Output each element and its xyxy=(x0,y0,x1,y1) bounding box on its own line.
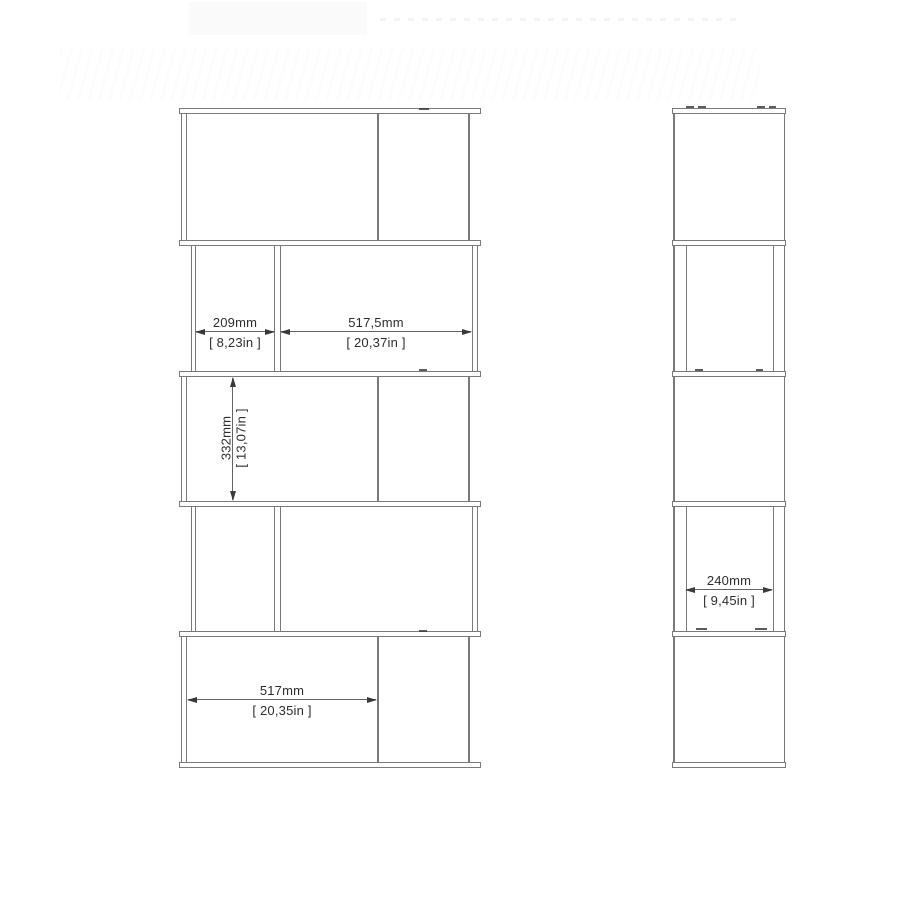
side-outer-left-edge xyxy=(673,114,675,762)
front-shelf-board-2 xyxy=(179,240,481,246)
dim-517-5mm: 517,5mm [ 20,37in ] xyxy=(281,331,471,333)
side-shelf-board-2 xyxy=(672,240,786,246)
dimension-line xyxy=(281,331,471,332)
print-artifact-dash xyxy=(686,106,694,108)
print-artifact-dash xyxy=(419,630,427,632)
dim-arrow-left-icon xyxy=(187,697,197,703)
front-row3-divider xyxy=(377,377,379,501)
front-shelf-board-bottom xyxy=(179,762,481,768)
dim-517mm: 517mm [ 20,35in ] xyxy=(188,699,376,701)
front-row2-right-panel xyxy=(472,246,478,371)
side-shelf-board-4 xyxy=(672,501,786,507)
side-shelf-board-top xyxy=(672,108,786,114)
side-row4-inner-back-edge xyxy=(773,507,774,631)
front-row5-divider xyxy=(377,637,379,762)
front-row4-right-panel xyxy=(472,507,478,631)
dim-label-inch: [ 20,37in ] xyxy=(346,336,405,349)
dim-arrow-right-icon xyxy=(367,697,377,703)
dim-label-mm: 209mm xyxy=(213,316,257,329)
front-row1-divider xyxy=(377,114,379,240)
dim-label-inch: [ 9,45in ] xyxy=(703,594,755,607)
front-row2-divider-panel xyxy=(274,246,281,371)
dim-arrow-right-icon xyxy=(265,329,275,335)
side-row4-inner-front-edge xyxy=(686,507,687,631)
dim-arrow-right-icon xyxy=(462,329,472,335)
technical-drawing-canvas: 209mm [ 8,23in ] 517,5mm [ 20,37in ] 332… xyxy=(0,0,900,900)
print-artifact-dash xyxy=(698,106,706,108)
dim-arrow-up-icon xyxy=(230,377,236,387)
dim-332mm: 332mm [ 13,07in ] xyxy=(232,378,234,500)
front-shelf-board-3 xyxy=(179,371,481,377)
print-artifact-dash xyxy=(419,108,429,110)
print-artifact-dash xyxy=(696,628,707,630)
front-row4-divider-panel xyxy=(274,507,281,631)
front-row3-left-panel xyxy=(181,377,187,501)
dim-arrow-right-icon xyxy=(763,587,773,593)
side-row2-inner-front-edge xyxy=(686,246,687,371)
print-artifact-dash xyxy=(756,369,763,371)
dimension-line xyxy=(188,699,376,700)
side-shelf-board-3 xyxy=(672,371,786,377)
dim-arrow-left-icon xyxy=(195,329,205,335)
front-row4-left-panel xyxy=(191,507,196,631)
dim-label-mm: 240mm xyxy=(707,574,751,587)
front-shelf-board-5 xyxy=(179,631,481,637)
side-shelf-board-5 xyxy=(672,631,786,637)
dim-label-mm: 517,5mm xyxy=(348,316,404,329)
dim-arrow-left-icon xyxy=(685,587,695,593)
dimension-line xyxy=(686,589,772,590)
dim-label-mm: 517mm xyxy=(260,684,304,697)
watermark-remnant-dots xyxy=(380,18,738,21)
print-artifact-dash xyxy=(757,106,765,108)
print-artifact-dash xyxy=(419,369,427,371)
watermark-remnant-box xyxy=(189,2,367,35)
side-outer-right-edge xyxy=(784,114,786,762)
front-shelf-board-4 xyxy=(179,501,481,507)
dim-label-inch: [ 13,07in ] xyxy=(235,408,248,467)
dim-label-inch: [ 8,23in ] xyxy=(209,336,261,349)
front-row5-right-edge xyxy=(468,637,470,762)
front-row1-left-panel xyxy=(181,114,187,240)
print-artifact-dash xyxy=(769,106,776,108)
watermark-remnant-band xyxy=(60,47,760,100)
dim-240mm: 240mm [ 9,45in ] xyxy=(686,589,772,591)
side-shelf-board-bottom xyxy=(672,762,786,768)
front-row1-right-edge xyxy=(468,114,470,240)
dim-arrow-left-icon xyxy=(280,329,290,335)
dim-label-inch: [ 20,35in ] xyxy=(252,704,311,717)
dim-label-mm: 332mm xyxy=(220,416,233,460)
dimension-line xyxy=(196,331,274,332)
front-row3-right-edge xyxy=(468,377,470,501)
print-artifact-dash xyxy=(755,628,767,630)
front-row2-left-panel xyxy=(191,246,196,371)
print-artifact-dash xyxy=(695,369,703,371)
dim-arrow-down-icon xyxy=(230,491,236,501)
side-row2-inner-back-edge xyxy=(773,246,774,371)
dim-209mm: 209mm [ 8,23in ] xyxy=(196,331,274,333)
front-shelf-board-top xyxy=(179,108,481,114)
